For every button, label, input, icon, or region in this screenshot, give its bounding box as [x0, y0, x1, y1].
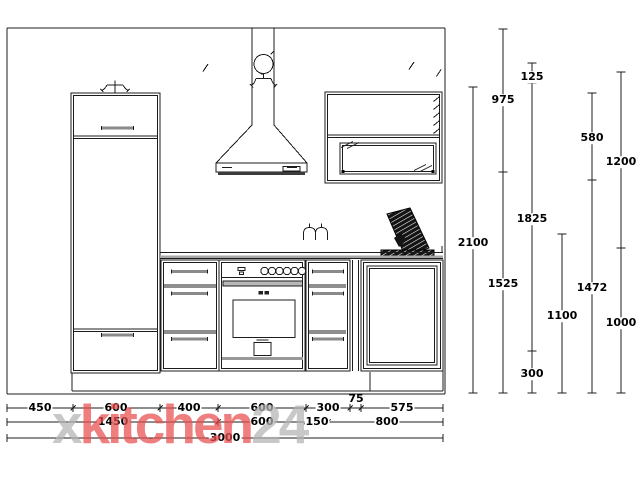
drawer-unit-400: [161, 260, 219, 371]
oven-door-window: [233, 300, 295, 338]
oven-knobs: [261, 267, 306, 274]
kitchen-elevation-drawing: 2100 975 1525 125 1825 300 1100 580 1472…: [0, 0, 640, 480]
dim-label-600c: 600: [250, 416, 275, 428]
dim-label-800: 800: [375, 416, 400, 428]
dim-label-2100: 2100: [457, 237, 490, 249]
dim-label-1100: 1100: [546, 310, 579, 322]
dim-label-400: 400: [177, 402, 202, 414]
dim-label-450: 450: [28, 402, 53, 414]
oven-unit: [219, 260, 306, 371]
oven-handle: [223, 281, 303, 286]
drawer-unit-300: [306, 260, 350, 371]
dim-label-1472: 1472: [576, 282, 609, 294]
wall-cabinet: [325, 92, 442, 183]
oven-display: [238, 268, 245, 271]
wall-outline: [7, 28, 445, 394]
dim-label-300h: 300: [316, 402, 341, 414]
dim-label-600b: 600: [250, 402, 275, 414]
tall-cabinet: [71, 93, 160, 373]
dim-label-150: 150: [305, 416, 330, 428]
dim-label-600a: 600: [104, 402, 129, 414]
dim-label-975: 975: [491, 94, 516, 106]
filler-panel: [353, 260, 359, 371]
dish-rack: [381, 208, 434, 257]
dim-label-1450: 1450: [97, 416, 130, 428]
dim-label-1825: 1825: [516, 213, 549, 225]
dim-label-1200: 1200: [605, 156, 638, 168]
fan-symbol-icon: [254, 52, 274, 75]
antenna-symbol-icon: [101, 81, 130, 94]
vertical-dimension-lines: [469, 29, 626, 393]
duct-valve-symbol-icon: [250, 74, 277, 88]
base-door-cabinet-575: [361, 260, 443, 371]
dim-label-580: 580: [580, 132, 605, 144]
dim-label-300v: 300: [520, 368, 545, 380]
oven-latch: [254, 343, 271, 356]
dim-label-3000: 3000: [209, 432, 242, 444]
wall-hatch-marks: [203, 62, 441, 77]
glass-flap-door: [340, 143, 436, 174]
dim-label-125: 125: [520, 71, 545, 83]
socket-symbol-icon: [304, 224, 328, 241]
countertop: [160, 246, 443, 259]
dim-label-1525: 1525: [487, 278, 520, 290]
extractor-hood: [216, 28, 307, 175]
dim-label-575: 575: [390, 402, 415, 414]
dim-label-1000: 1000: [605, 317, 638, 329]
dim-label-75: 75: [347, 393, 364, 405]
plinth: [72, 371, 443, 391]
